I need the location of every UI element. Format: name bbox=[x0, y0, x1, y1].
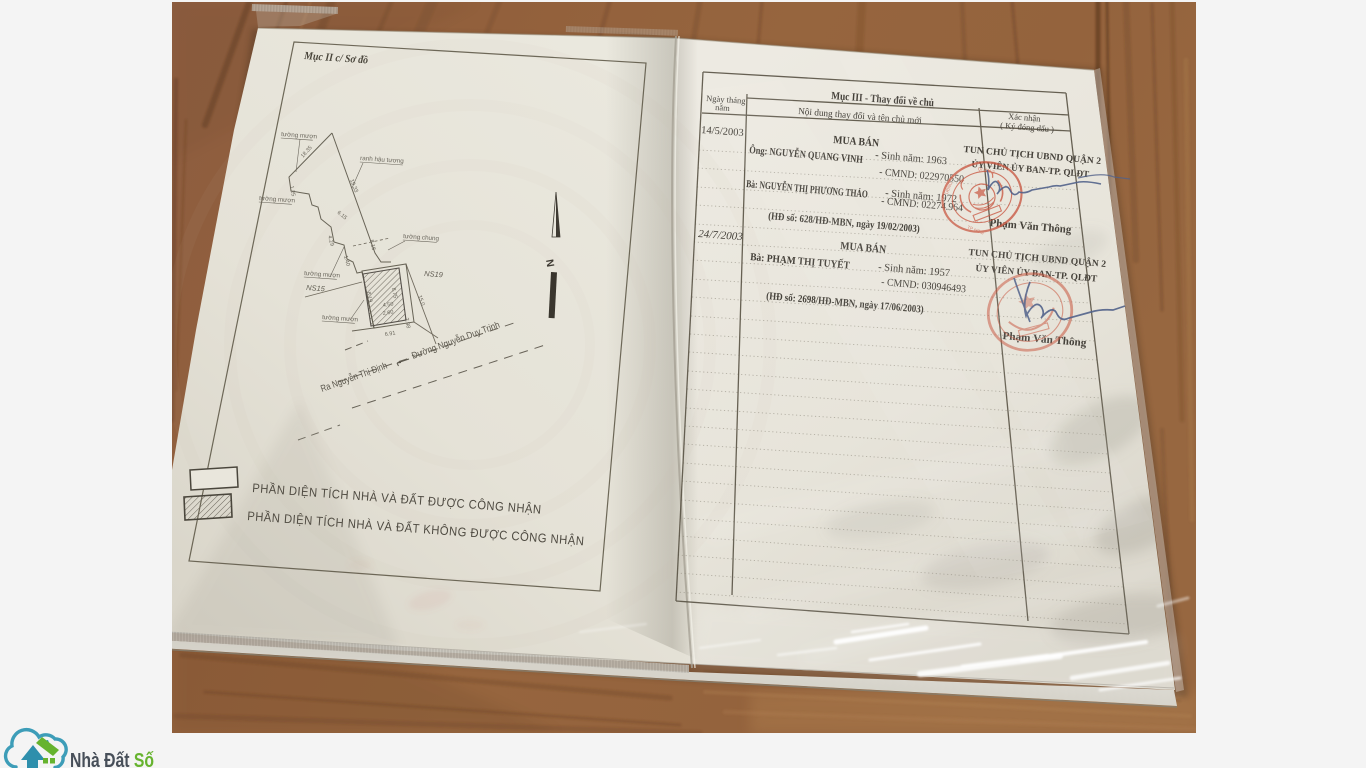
svg-text:NS15: NS15 bbox=[306, 283, 326, 293]
svg-text:Nhà Đất Số: Nhà Đất Số bbox=[70, 750, 154, 768]
svg-text:NS19: NS19 bbox=[424, 269, 444, 279]
